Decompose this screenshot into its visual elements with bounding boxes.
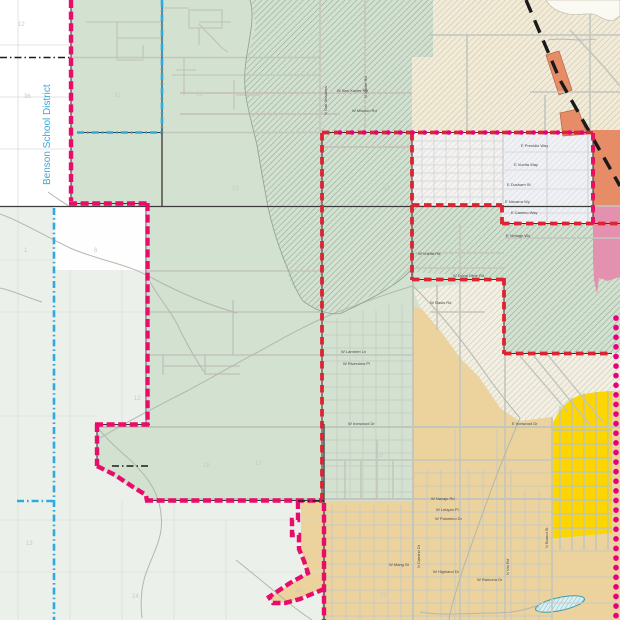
- svg-text:31: 31: [114, 93, 121, 99]
- svg-text:12: 12: [134, 396, 141, 402]
- svg-text:12: 12: [18, 22, 25, 28]
- svg-text:E Dusham St: E Dusham St: [507, 182, 531, 187]
- svg-text:W Ramona Dr: W Ramona Dr: [477, 577, 503, 582]
- svg-text:33: 33: [232, 186, 239, 192]
- svg-text:W Mang St: W Mang St: [389, 562, 410, 567]
- svg-text:20: 20: [295, 588, 302, 594]
- svg-text:W Palomino Dr: W Palomino Dr: [435, 516, 463, 521]
- svg-text:13: 13: [26, 541, 33, 547]
- svg-text:E Presidio Way: E Presidio Way: [521, 143, 548, 148]
- svg-text:16: 16: [376, 453, 383, 459]
- svg-text:24: 24: [132, 594, 139, 600]
- svg-text:21: 21: [380, 593, 387, 599]
- svg-text:N Bound St: N Bound St: [544, 527, 549, 548]
- svg-text:W Lelapin Pl: W Lelapin Pl: [436, 507, 459, 512]
- svg-text:E Camino Way: E Camino Way: [511, 210, 538, 215]
- svg-text:W Lambert Ln: W Lambert Ln: [341, 349, 366, 354]
- svg-text:34: 34: [383, 186, 390, 192]
- svg-text:N Xavier Rd: N Xavier Rd: [363, 76, 368, 98]
- svg-text:E Vuelta Way: E Vuelta Way: [514, 162, 538, 167]
- svg-text:E Navarra Wy: E Navarra Wy: [505, 199, 530, 204]
- svg-text:N Oak Shadows: N Oak Shadows: [323, 86, 328, 115]
- svg-text:Benson School District: Benson School District: [42, 84, 53, 185]
- svg-text:W Vuelta Rd: W Vuelta Rd: [418, 251, 440, 256]
- svg-text:17: 17: [255, 461, 262, 467]
- svg-text:W Duval Mine Rd: W Duval Mine Rd: [453, 273, 484, 278]
- svg-text:32: 32: [196, 92, 203, 98]
- svg-text:N Camino Dr: N Camino Dr: [416, 544, 421, 568]
- svg-text:N Via Rd: N Via Rd: [505, 559, 510, 575]
- svg-text:W Riverview Pl: W Riverview Pl: [343, 361, 370, 366]
- svg-text:E Vintage Wy: E Vintage Wy: [506, 233, 530, 238]
- svg-text:E Ironwood Dr: E Ironwood Dr: [512, 421, 538, 426]
- svg-text:W Oasis Rd: W Oasis Rd: [430, 300, 451, 305]
- svg-text:18: 18: [203, 463, 210, 469]
- svg-text:W Navajo Rd: W Navajo Rd: [431, 496, 455, 501]
- svg-text:W Ironwood Dr: W Ironwood Dr: [348, 421, 375, 426]
- svg-text:36: 36: [24, 94, 31, 100]
- svg-text:W Mission Rd: W Mission Rd: [352, 108, 377, 113]
- svg-text:W Highland Dr: W Highland Dr: [433, 569, 460, 574]
